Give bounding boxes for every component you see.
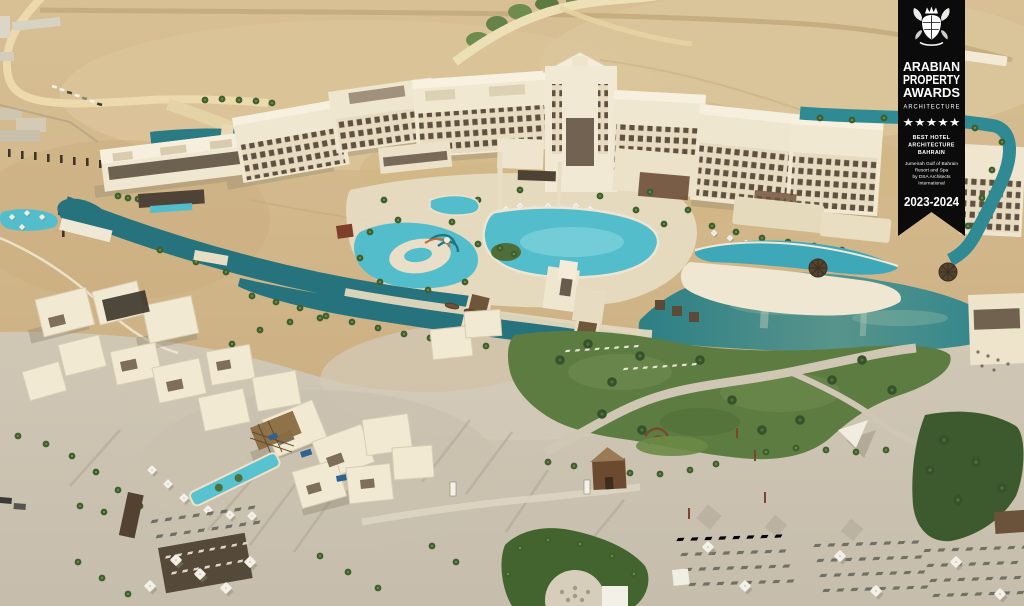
award-category-line: BAHRAIN <box>918 150 945 156</box>
resort-aerial-scene: ARABIAN PROPERTY AWARDS ARCHITECTURE ★★★… <box>0 0 1024 606</box>
central-tower <box>543 52 617 192</box>
award-recipient-line: International <box>918 181 944 187</box>
award-title-line: AWARDS <box>903 85 960 100</box>
award-category-line: ARCHITECTURE <box>908 143 955 149</box>
award-recipient-line: Jumeirah Gulf of Bahrain <box>905 161 958 167</box>
award-recipient-line: by DSA Architects <box>912 174 951 180</box>
award-subtitle: ARCHITECTURE <box>904 104 961 111</box>
resort-aerial-photo <box>0 0 1024 606</box>
award-edition: 2023-2024 <box>904 194 960 209</box>
award-category-line: BEST HOTEL <box>913 135 951 141</box>
award-ribbon: ARABIAN PROPERTY AWARDS ARCHITECTURE ★★★… <box>898 0 965 238</box>
five-stars-icon: ★★★★★ <box>903 117 961 129</box>
award-recipient-line: Resort and Spa <box>915 168 949 174</box>
